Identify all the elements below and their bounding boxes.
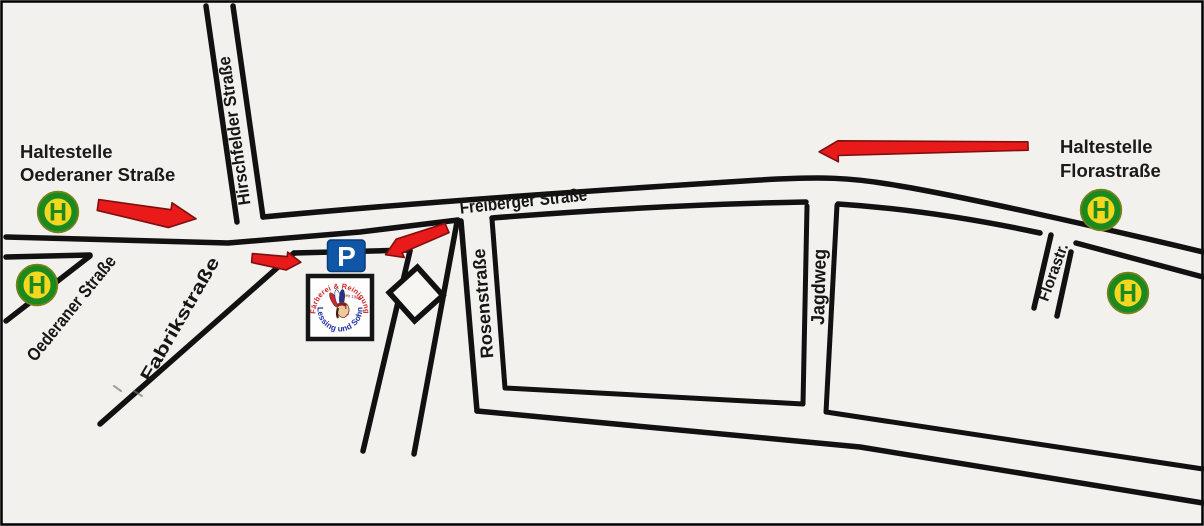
bus-stop-sign-flora-north: H xyxy=(1081,190,1121,230)
stop-left-line1: Haltestelle xyxy=(20,141,113,162)
parking-sign-letter: P xyxy=(337,241,356,272)
arrow-west-eastbound xyxy=(96,193,198,232)
arrow-east-westbound xyxy=(819,136,1029,163)
stray-mark xyxy=(114,386,121,391)
bus-stop-caption-right: Haltestelle Florastraße xyxy=(1060,136,1161,181)
stop-left-line2: Oederaner Straße xyxy=(20,164,175,185)
bus-stop-sign-letter: H xyxy=(49,199,67,227)
map-border xyxy=(2,2,1203,525)
bus-stop-sign-flora-south: H xyxy=(1108,273,1148,313)
street-label-fabrik: Fabrikstraße xyxy=(136,253,223,384)
city-block-east-outline xyxy=(826,205,1203,469)
stop-right-line2: Florastraße xyxy=(1060,160,1161,181)
bus-stop-sign-letter: H xyxy=(1092,197,1110,225)
road-network xyxy=(6,6,1203,503)
bus-stop-sign-oederaner-south: H xyxy=(17,265,57,305)
bus-stop-caption-left: Haltestelle Oederaner Straße xyxy=(20,141,175,185)
bus-stop-sign-oederaner-north: H xyxy=(38,192,78,232)
stop-right-line1: Haltestelle xyxy=(1060,136,1153,157)
bus-stop-sign-letter: H xyxy=(28,272,46,300)
street-freiberger-lowest-left-line xyxy=(6,255,90,257)
site-map: Hirschfelder Straße Freiberger Straße Oe… xyxy=(0,0,1204,526)
eye-icon xyxy=(345,307,347,309)
street-bottom-south-line xyxy=(477,411,1203,503)
parking-sign: P xyxy=(328,240,366,272)
street-label-jagdweg: Jagdweg xyxy=(808,249,831,326)
company-logo: Färberei & Reinigung Lessing und Sohn se… xyxy=(308,276,372,339)
street-fabrik-right-line xyxy=(414,222,457,454)
bus-stop-sign-letter: H xyxy=(1119,280,1137,308)
braid-icon xyxy=(337,308,338,318)
city-block-west-outline xyxy=(492,206,807,404)
